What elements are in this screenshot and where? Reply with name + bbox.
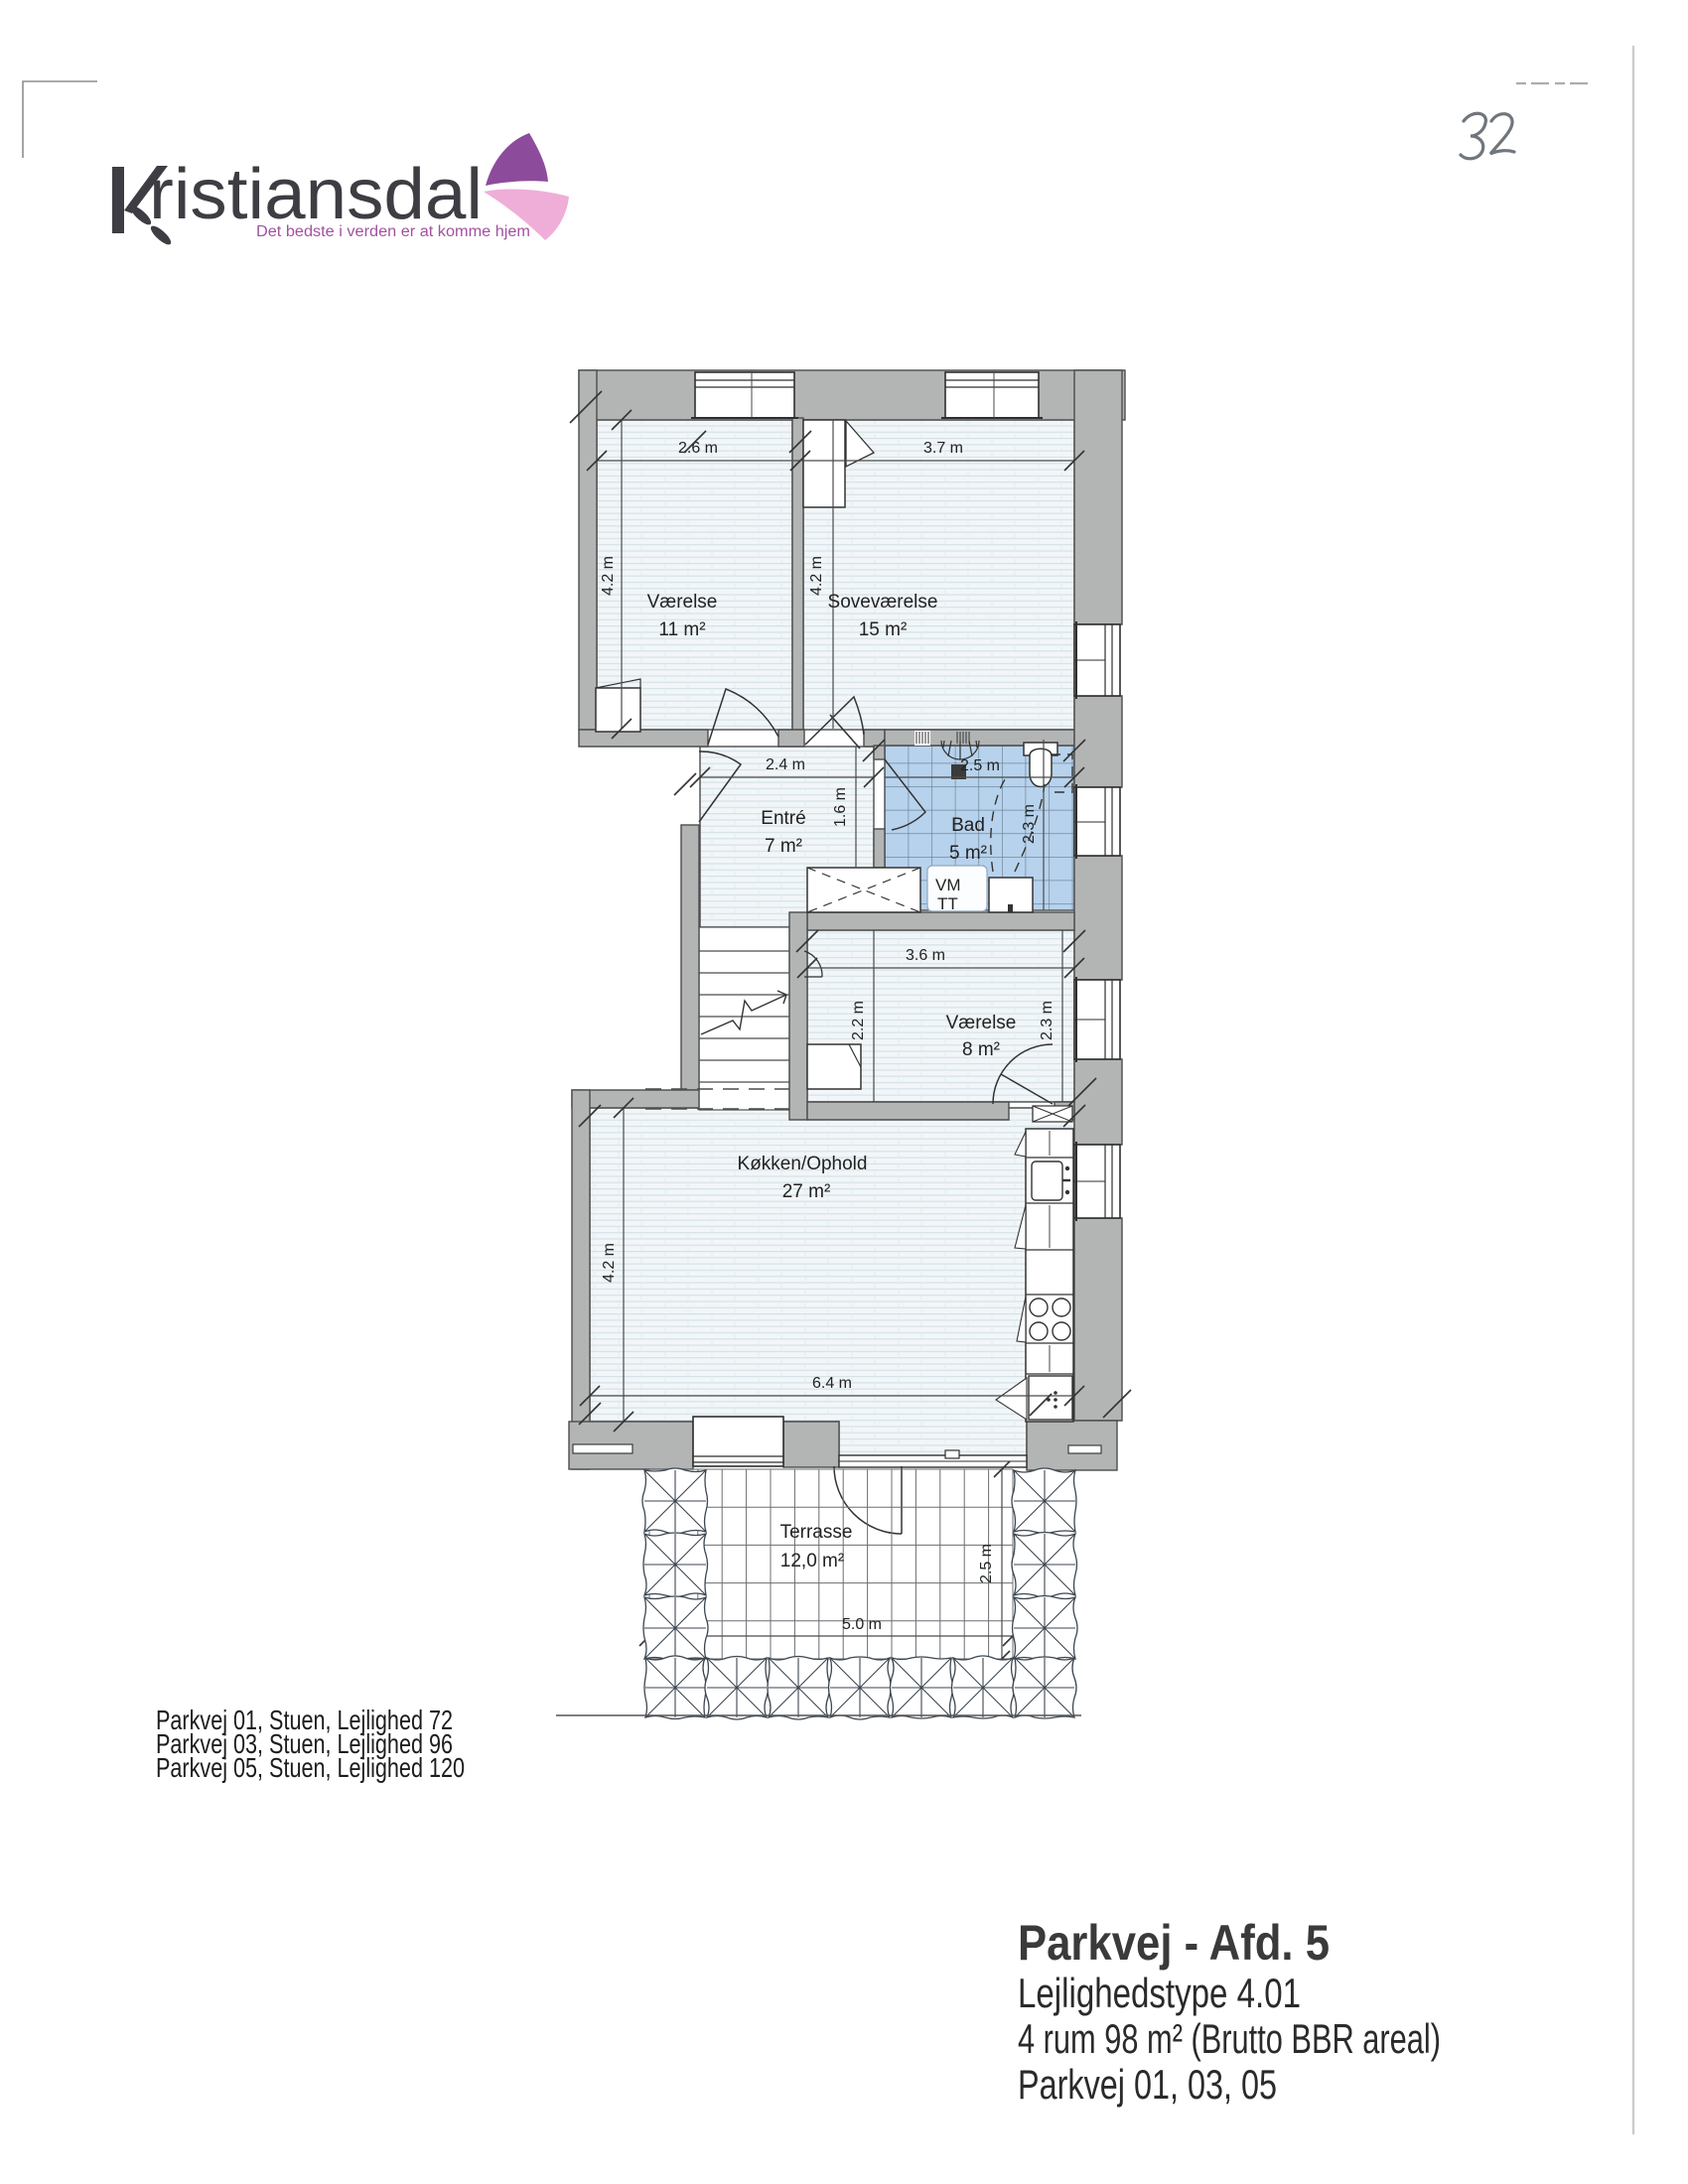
- svg-text:2.2 m: 2.2 m: [850, 1001, 867, 1040]
- svg-text:2.3 m: 2.3 m: [1039, 1001, 1055, 1040]
- svg-text:Soveværelse: Soveværelse: [828, 592, 938, 613]
- svg-text:2.4 m: 2.4 m: [766, 756, 805, 773]
- svg-text:11 m²: 11 m²: [658, 619, 705, 640]
- svg-text:2.6 m: 2.6 m: [678, 440, 718, 457]
- svg-text:TT: TT: [937, 894, 958, 913]
- svg-text:27 m²: 27 m²: [782, 1181, 831, 1202]
- svg-text:3.6 m: 3.6 m: [906, 947, 945, 964]
- svg-text:1.6 m: 1.6 m: [832, 787, 849, 827]
- svg-text:Værelse: Værelse: [647, 592, 718, 613]
- svg-text:Entré: Entré: [761, 808, 805, 829]
- svg-text:4.2 m: 4.2 m: [808, 556, 825, 596]
- svg-text:2.5 m: 2.5 m: [978, 1544, 995, 1583]
- svg-text:5.0 m: 5.0 m: [842, 1616, 882, 1633]
- svg-text:2.3 m: 2.3 m: [1021, 804, 1038, 844]
- svg-text:Parkvej 05, Stuen, Lejlighed 1: Parkvej 05, Stuen, Lejlighed 120: [156, 1752, 465, 1783]
- svg-text:5 m²: 5 m²: [949, 843, 987, 864]
- svg-text:8 m²: 8 m²: [962, 1039, 1000, 1060]
- svg-text:Parkvej 01, 03, 05: Parkvej 01, 03, 05: [1018, 2061, 1277, 2108]
- svg-text:VM: VM: [935, 876, 961, 894]
- svg-text:3.7 m: 3.7 m: [923, 440, 963, 457]
- svg-text:Parkvej - Afd. 5: Parkvej - Afd. 5: [1018, 1915, 1330, 1971]
- svg-text:Det bedste i verden er at komm: Det bedste i verden er at komme hjem: [256, 223, 530, 240]
- svg-text:12,0 m²: 12,0 m²: [780, 1551, 844, 1571]
- svg-text:Køkken/Ophold: Køkken/Ophold: [738, 1154, 868, 1174]
- svg-text:ristiansdal: ristiansdal: [149, 155, 483, 234]
- svg-text:Værelse: Værelse: [946, 1013, 1017, 1033]
- svg-text:4 rum 98 m² (Brutto BBR areal): 4 rum 98 m² (Brutto BBR areal): [1018, 2015, 1441, 2062]
- svg-text:7 m²: 7 m²: [765, 836, 802, 857]
- svg-text:Lejlighedstype 4.01: Lejlighedstype 4.01: [1018, 1970, 1301, 2016]
- svg-text:4.2 m: 4.2 m: [600, 556, 617, 596]
- svg-text:Bad: Bad: [951, 815, 985, 836]
- svg-text:6.4 m: 6.4 m: [812, 1375, 852, 1392]
- svg-text:15 m²: 15 m²: [859, 619, 908, 640]
- svg-text:4.2 m: 4.2 m: [601, 1243, 618, 1283]
- svg-text:2.5 m: 2.5 m: [960, 757, 1000, 774]
- svg-text:Terrasse: Terrasse: [780, 1522, 853, 1543]
